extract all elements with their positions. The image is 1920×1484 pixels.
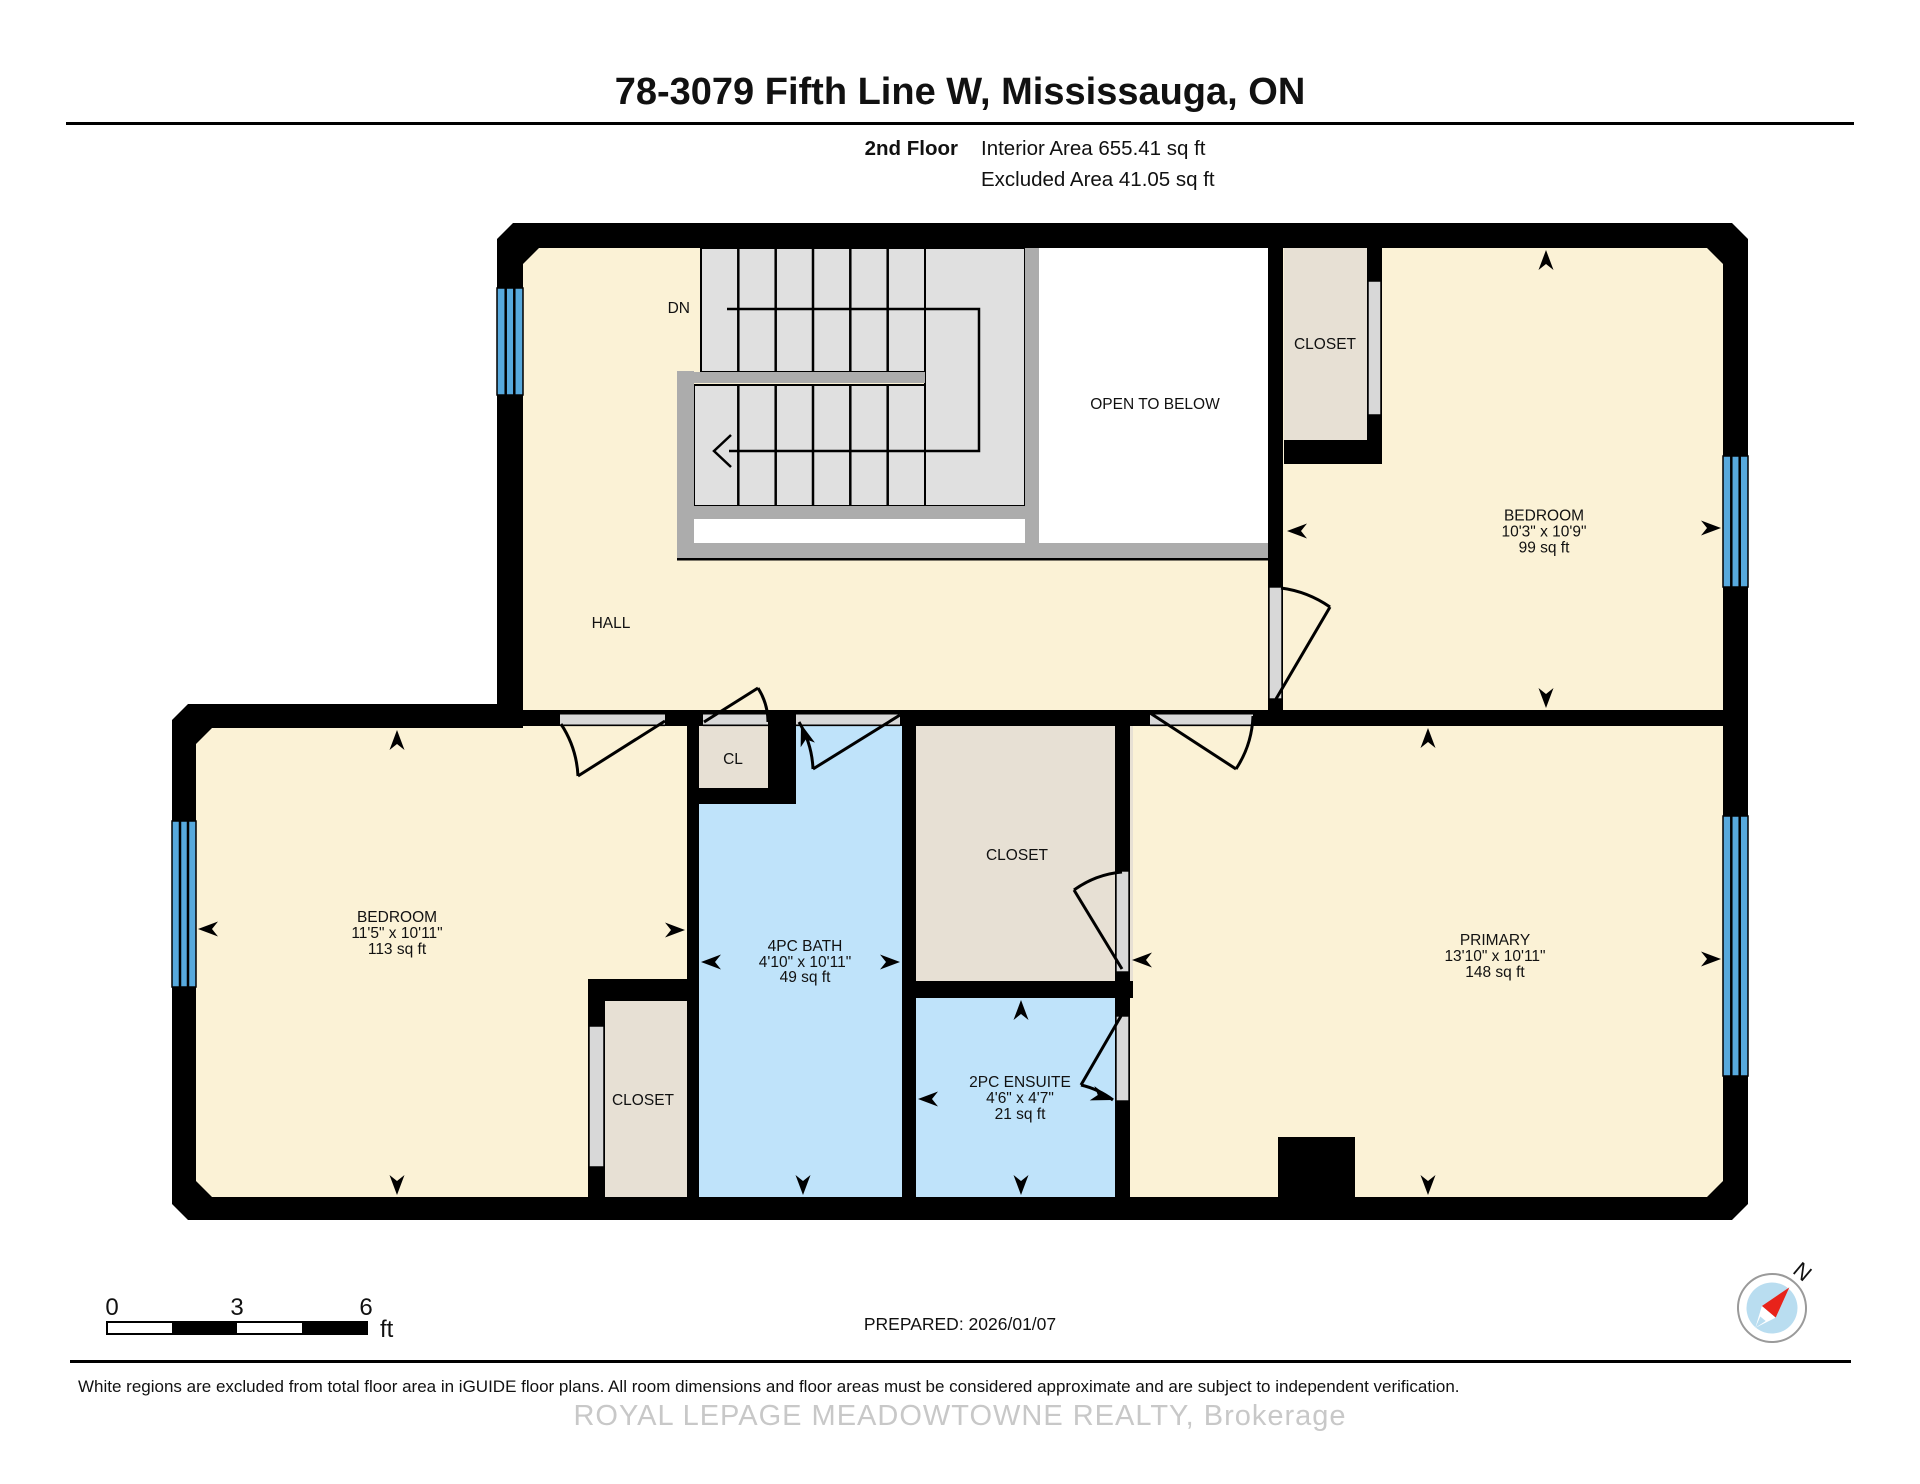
svg-text:PRIMARY: PRIMARY <box>1460 932 1530 949</box>
svg-text:CLOSET: CLOSET <box>986 847 1049 864</box>
svg-text:99 sq ft: 99 sq ft <box>1519 540 1571 557</box>
svg-text:BEDROOM: BEDROOM <box>1504 508 1584 525</box>
svg-text:BEDROOM: BEDROOM <box>357 909 437 926</box>
svg-text:Excluded Area 41.05 sq ft: Excluded Area 41.05 sq ft <box>981 168 1215 191</box>
svg-text:11'5" x 10'11": 11'5" x 10'11" <box>351 925 442 942</box>
svg-text:4'6" x 4'7": 4'6" x 4'7" <box>986 1090 1054 1107</box>
svg-text:Interior Area 655.41 sq ft: Interior Area 655.41 sq ft <box>981 137 1206 160</box>
svg-text:PREPARED: 2026/01/07: PREPARED: 2026/01/07 <box>864 1314 1056 1334</box>
svg-text:ROYAL LEPAGE MEADOWTOWNE REALT: ROYAL LEPAGE MEADOWTOWNE REALTY, Brokera… <box>573 1400 1346 1432</box>
svg-text:148 sq ft: 148 sq ft <box>1465 964 1525 981</box>
svg-text:HALL: HALL <box>592 615 631 632</box>
svg-text:10'3" x 10'9": 10'3" x 10'9" <box>1501 524 1586 541</box>
svg-text:0: 0 <box>105 1294 118 1321</box>
svg-text:DN: DN <box>668 300 690 317</box>
svg-text:CLOSET: CLOSET <box>1294 336 1357 353</box>
svg-text:4PC BATH: 4PC BATH <box>768 938 843 955</box>
svg-text:2PC ENSUITE: 2PC ENSUITE <box>969 1074 1071 1091</box>
svg-text:13'10" x 10'11": 13'10" x 10'11" <box>1444 948 1545 965</box>
svg-text:White regions are excluded fro: White regions are excluded from total fl… <box>78 1377 1460 1396</box>
svg-text:CLOSET: CLOSET <box>612 1092 675 1109</box>
svg-text:CL: CL <box>723 751 743 768</box>
svg-text:3: 3 <box>230 1294 243 1321</box>
svg-text:ft: ft <box>380 1316 394 1343</box>
svg-text:6: 6 <box>359 1294 372 1321</box>
svg-text:113 sq ft: 113 sq ft <box>368 941 427 958</box>
svg-text:78-3079 Fifth Line W, Mississa: 78-3079 Fifth Line W, Mississauga, ON <box>615 71 1306 113</box>
svg-text:2nd Floor: 2nd Floor <box>865 137 958 160</box>
svg-text:21 sq ft: 21 sq ft <box>995 1106 1047 1123</box>
svg-text:49 sq ft: 49 sq ft <box>780 969 832 986</box>
svg-text:OPEN TO BELOW: OPEN TO BELOW <box>1090 396 1220 413</box>
